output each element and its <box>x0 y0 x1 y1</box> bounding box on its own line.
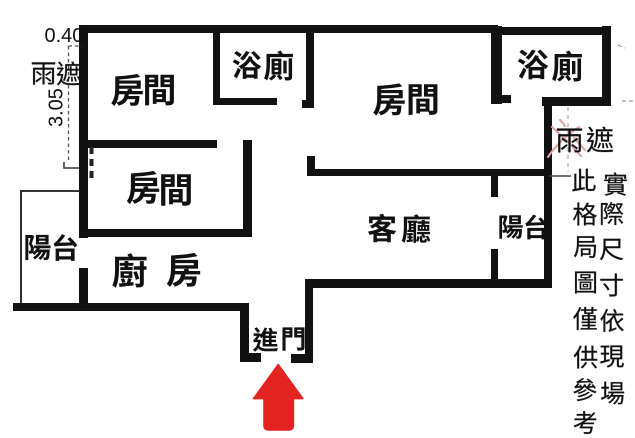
svg-text:3.05: 3.05 <box>46 88 68 127</box>
svg-text:0.40: 0.40 <box>45 25 84 47</box>
